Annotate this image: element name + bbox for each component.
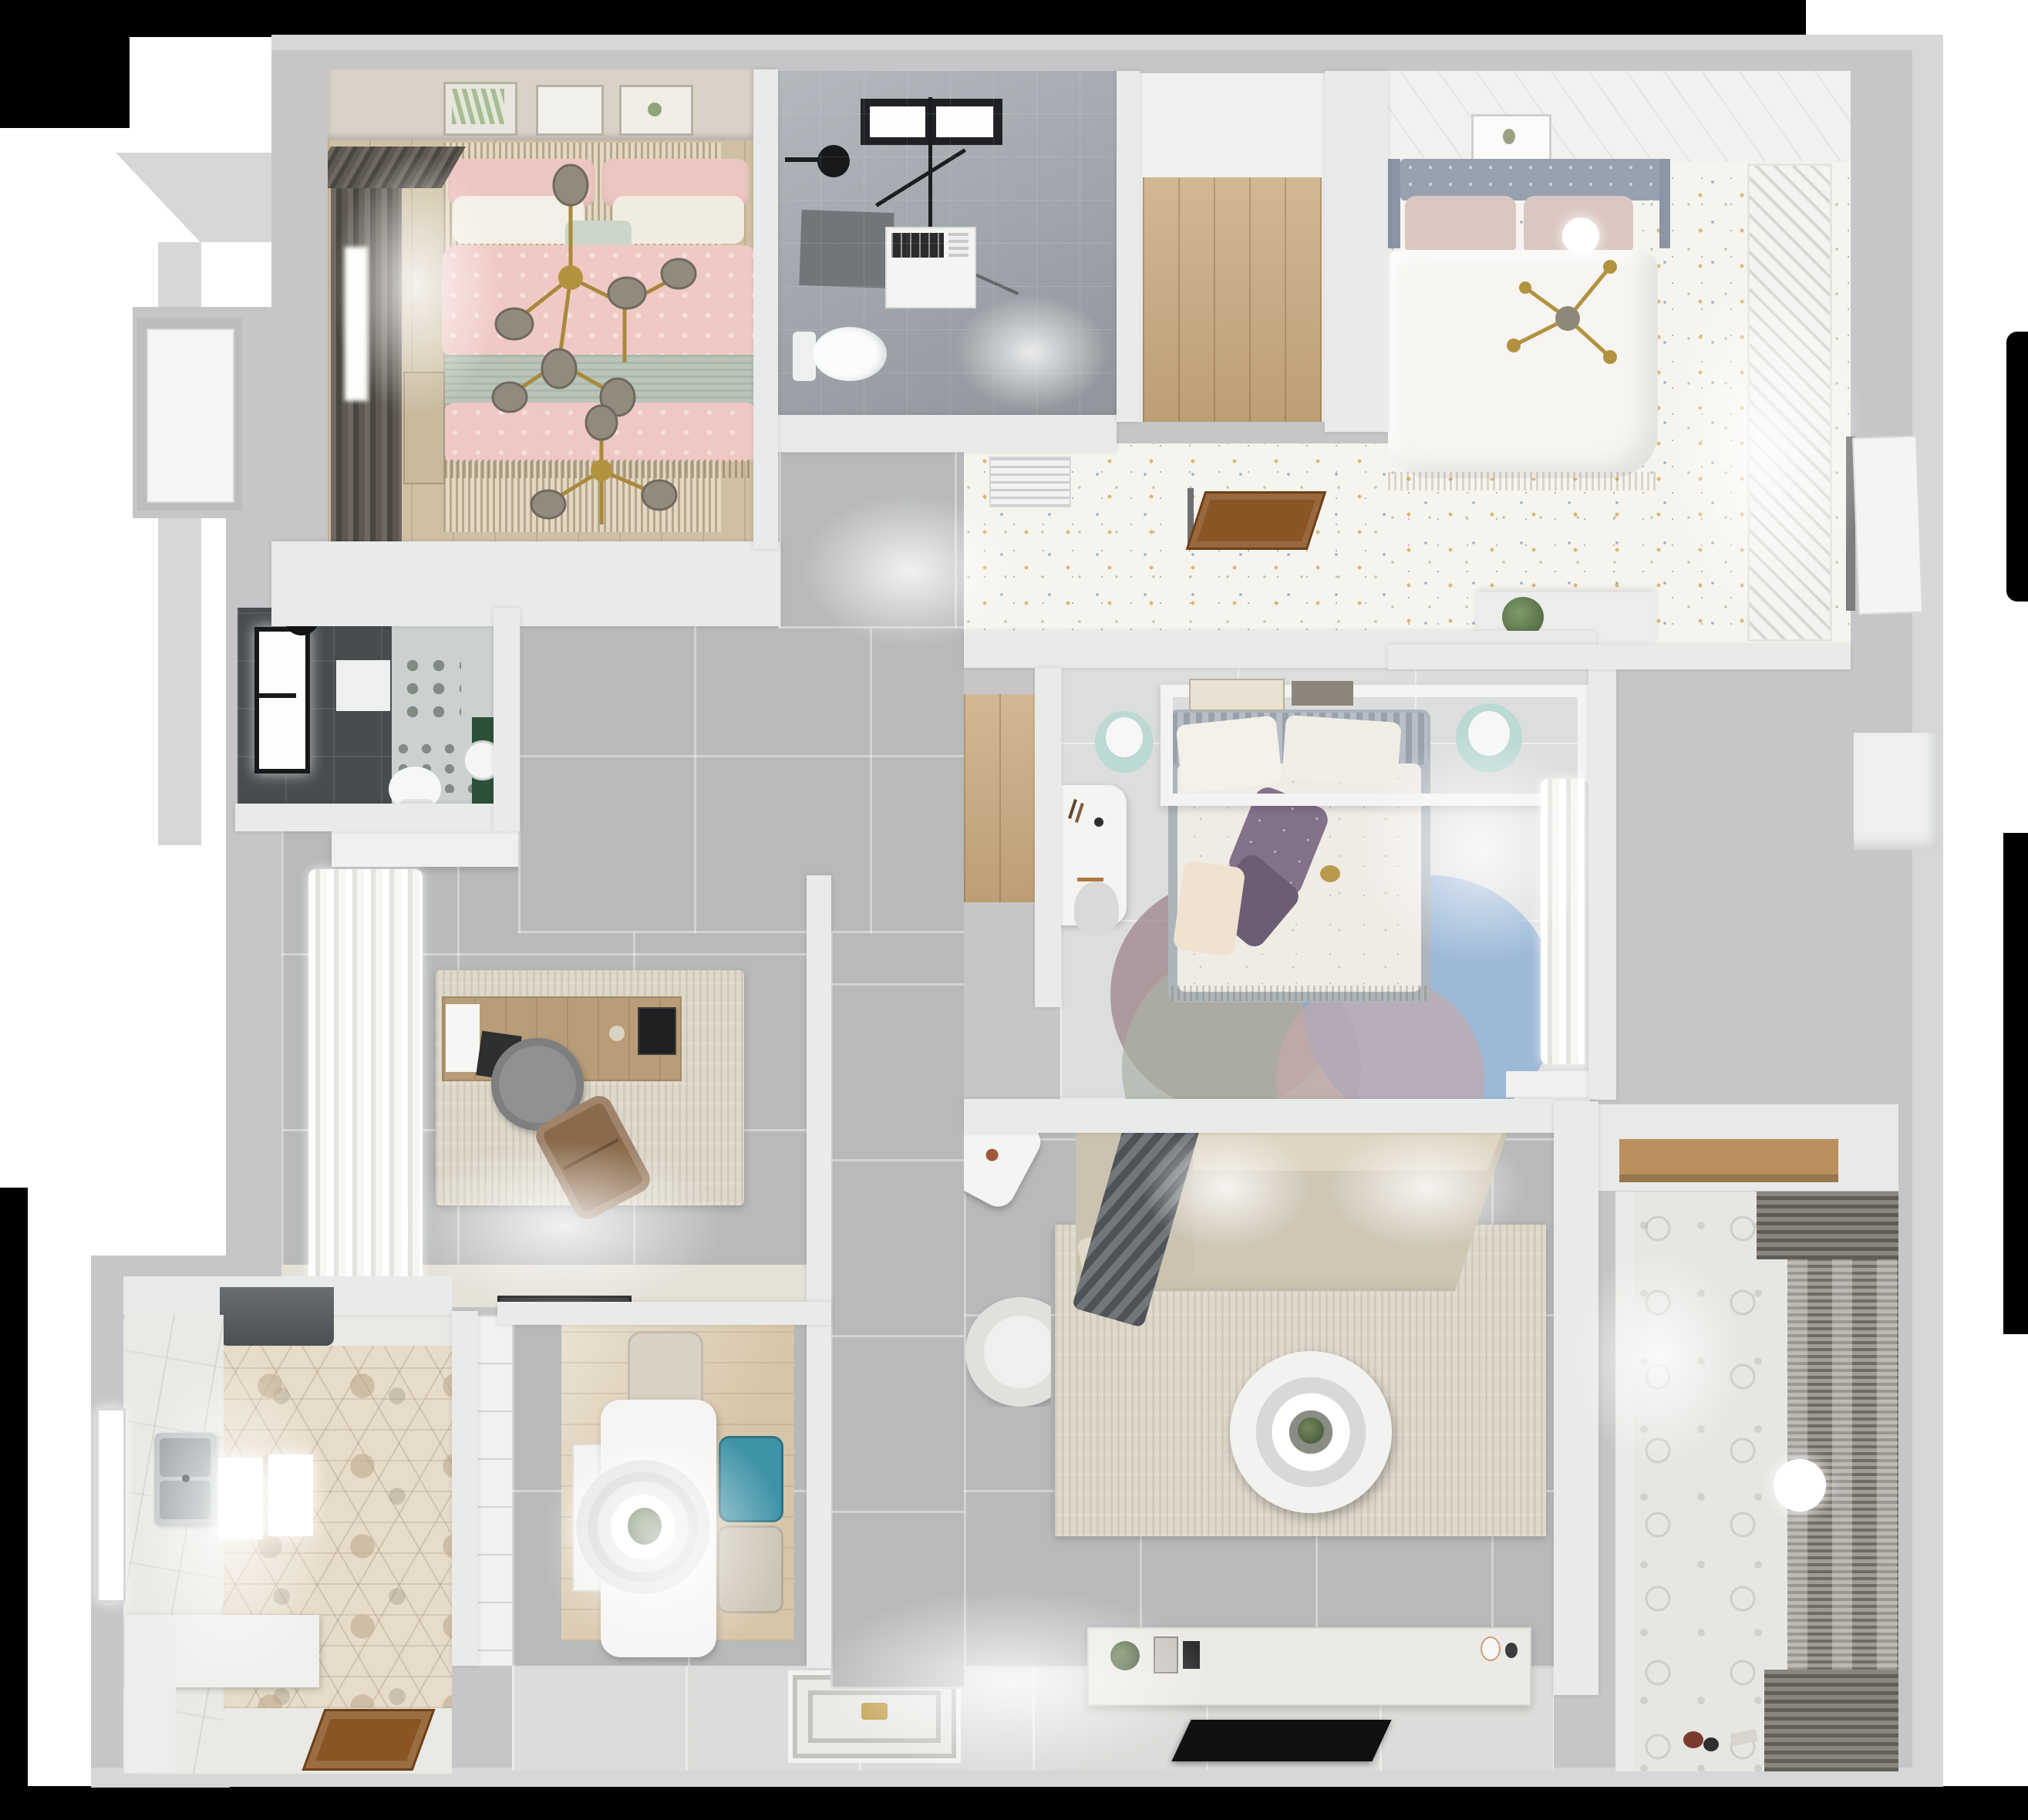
console-frame-2 (1183, 1641, 1200, 1669)
window-mullion (259, 693, 296, 698)
wall-bath-south (777, 415, 1117, 452)
walkin-wood-floor (1143, 177, 1322, 422)
room-kitchen (123, 1276, 452, 1774)
sink-faucet (182, 1475, 190, 1482)
room-storage (1598, 1104, 1898, 1191)
towel-square (336, 660, 390, 711)
toilet-tank (793, 332, 816, 381)
shower-arm (785, 157, 820, 162)
wall-bath3-east (494, 608, 520, 831)
dining-chair-top (628, 1331, 703, 1405)
toy-2 (1703, 1737, 1719, 1751)
branch-chandelier (443, 162, 721, 532)
blinds-top-stack (1757, 1191, 1898, 1259)
room-suite-hall (964, 443, 1388, 632)
wall-bath3-south (235, 804, 497, 831)
console-plant-ball (1110, 1641, 1140, 1670)
balcony-ceiling-light (1774, 1459, 1826, 1512)
counter-light-1 (218, 1458, 263, 1539)
headboard-rail-left (1388, 159, 1400, 248)
glass-panel-edge (897, 238, 1019, 295)
flat-tv (1171, 1720, 1391, 1761)
wall-middlebed-west (1035, 668, 1061, 1007)
counter-light-2 (268, 1454, 313, 1536)
matte-top-left (0, 0, 130, 128)
shower-head (817, 145, 850, 177)
table-plant (1298, 1417, 1324, 1444)
desk-pens (1068, 799, 1077, 819)
kitchen-sink (154, 1433, 216, 1525)
desk-knob (1094, 817, 1103, 827)
room-walkin-hall (1140, 73, 1325, 422)
doormat-key-motif (861, 1703, 888, 1720)
middle-curtains (1541, 779, 1588, 1064)
wall-bath-hall (1117, 71, 1140, 422)
master-wall-frame (1471, 114, 1551, 165)
ceiling-band (1388, 71, 1851, 162)
entry-door-left (147, 329, 234, 503)
shelf-books-2 (1292, 681, 1353, 706)
sink-basin-1 (160, 1438, 211, 1477)
side-white-door (1852, 436, 1923, 615)
wall-frame-botanical-3 (619, 85, 693, 136)
washer-panel-lines (948, 233, 969, 258)
wall-pinkbed-south (271, 541, 780, 626)
corridor-bath-side (779, 451, 964, 629)
gold-cross-chandelier (1494, 253, 1641, 384)
stool-flowers (984, 1147, 1001, 1164)
desk-chair-tucked (1074, 881, 1119, 935)
console-vase-2 (1505, 1643, 1518, 1658)
dark-window (254, 627, 310, 773)
pendant-ball-lamp (1562, 217, 1599, 254)
bathroom-window (861, 99, 1002, 145)
pendant-plant (628, 1508, 662, 1545)
wall-pink-bath (753, 69, 778, 549)
dark-valance (328, 147, 466, 188)
desk-plant-dot (609, 1026, 625, 1041)
shower-floor-dark (799, 210, 894, 288)
stool-top-2 (1468, 711, 1510, 756)
console-frame-1 (1154, 1636, 1178, 1673)
window-glow (345, 247, 368, 401)
wood-alcove (964, 694, 1035, 902)
tv-console (1087, 1627, 1531, 1706)
matte-left (0, 1188, 28, 1820)
teal-chair (719, 1436, 783, 1522)
shower-frame-h (805, 230, 941, 234)
pillow-cream (1172, 860, 1245, 957)
matte-right-lower (2003, 833, 2028, 1334)
wall-corridor-study (807, 875, 831, 1668)
bath-light (955, 295, 1109, 410)
toy-1 (1683, 1731, 1703, 1748)
suite-open-door (1186, 491, 1327, 550)
matte-bottom (0, 1786, 2028, 1820)
frame-art-green (452, 89, 504, 124)
room-dining (512, 1315, 830, 1668)
wall-kitchen-dining (452, 1311, 478, 1666)
dining-chair-bottom (717, 1525, 783, 1613)
room-bedroom-middle (1060, 667, 1588, 1099)
window-pane-1 (870, 106, 925, 137)
room-bedroom-pink (328, 69, 753, 543)
toilet-bowl (813, 327, 887, 381)
corridor-upper (518, 626, 964, 933)
corridor-vertical (830, 933, 964, 1689)
master-bed-fringe (1388, 472, 1656, 490)
balcony-left-wall (1615, 1191, 1634, 1771)
wall-middlebed-south (964, 1099, 1590, 1133)
desk-paper (446, 1004, 480, 1072)
room-balcony (1615, 1191, 1898, 1771)
stool-top (1106, 717, 1143, 757)
wall-frame-botanical-1 (443, 82, 517, 136)
shower-frame-v (928, 97, 932, 239)
window-bench (1506, 1071, 1588, 1097)
desk-tablet (638, 1007, 676, 1055)
wall-top-face (271, 35, 1943, 50)
middle-bed-fringe (1171, 986, 1427, 1001)
shower-frame-diag (875, 148, 966, 207)
master-headboard (1400, 159, 1662, 201)
sink-basin-2 (160, 1481, 211, 1519)
range-hood (220, 1287, 334, 1346)
floor-plan-canvas (0, 0, 2028, 1820)
mint-stool-left (1095, 711, 1154, 773)
matte-right-upper (2006, 332, 2028, 602)
mint-stool-right (1456, 703, 1522, 773)
gold-brooch (1320, 865, 1340, 882)
louver-wardrobe (1747, 163, 1832, 642)
washer-controls (891, 233, 944, 258)
ring-coffee-table (1230, 1351, 1392, 1513)
marble-pattern-blob-1 (399, 654, 461, 723)
leaning-art (403, 372, 445, 484)
wall-middlebed-east (1588, 668, 1616, 1100)
matte-top (0, 0, 1806, 37)
storage-wood-shelf (1619, 1139, 1838, 1182)
wall-frame-botanical-2 (536, 85, 604, 136)
room-bathroom-main (777, 71, 1117, 416)
console-vase-1 (1481, 1636, 1501, 1661)
washing-machine (885, 227, 976, 308)
shelf-books (1189, 679, 1285, 711)
wall-study-south (497, 1302, 831, 1325)
wall-living-balcony (1554, 1101, 1598, 1695)
blinds-bottom-stack (1764, 1670, 1898, 1771)
wall-right-face (1912, 35, 1943, 1787)
wall-master-south (1388, 645, 1851, 669)
frame-leaf-dot (648, 103, 662, 116)
ac-vent (989, 457, 1071, 507)
kitchen-window (96, 1408, 126, 1603)
matte-white-bump (1965, 1379, 2028, 1465)
headboard-rail-right (1659, 159, 1670, 248)
wall-hall-master (1325, 71, 1388, 432)
kitchen-counter-side (125, 1615, 176, 1772)
kitchen-entry-door (302, 1709, 435, 1771)
lounge-cushion-line (563, 1138, 619, 1170)
pendant-ring-lamp (576, 1460, 710, 1594)
desk-drawer-slit (1077, 878, 1103, 881)
master-pillow-left (1405, 196, 1516, 256)
pantry-shelves (477, 1315, 512, 1666)
frame-plant-motif (1503, 129, 1515, 144)
window-pane-2 (936, 106, 993, 137)
study-curtains (308, 869, 423, 1299)
room-living (964, 1103, 1554, 1668)
white-niche-box (1854, 733, 1939, 850)
room-bathroom-dark (237, 608, 494, 805)
room-bedroom-master (1388, 71, 1851, 663)
